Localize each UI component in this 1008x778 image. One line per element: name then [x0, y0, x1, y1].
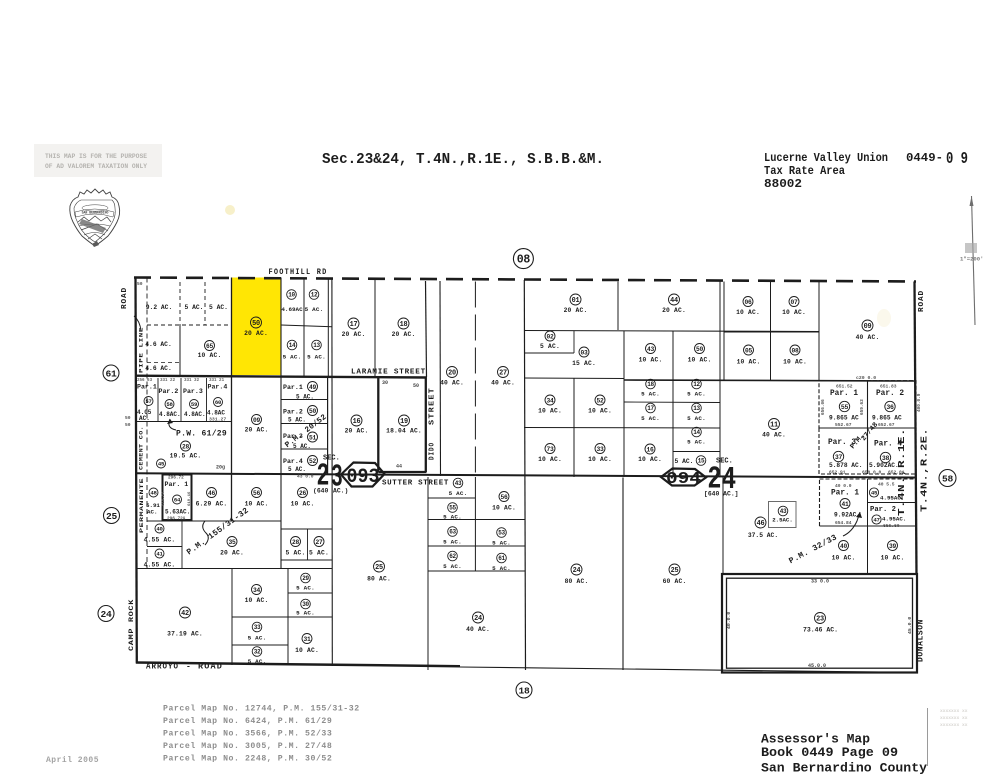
svg-text:10 AC.: 10 AC. — [688, 357, 712, 364]
svg-text:47: 47 — [873, 517, 880, 524]
svg-text:34: 34 — [547, 397, 554, 404]
svg-text:44: 44 — [396, 464, 402, 470]
svg-text:5 AC.: 5 AC. — [305, 306, 324, 313]
svg-text:23: 23 — [816, 615, 824, 623]
svg-text:01: 01 — [572, 297, 580, 305]
svg-text:5 AC.: 5 AC. — [296, 394, 314, 401]
svg-text:12: 12 — [693, 381, 700, 388]
svg-text:05: 05 — [745, 347, 752, 354]
svg-text:5 AC.: 5 AC. — [283, 354, 302, 361]
svg-text:ROAD: ROAD — [918, 290, 926, 312]
svg-text:44: 44 — [670, 297, 678, 305]
svg-text:20 AC.: 20 AC. — [662, 307, 686, 314]
svg-text:5 AC.: 5 AC. — [443, 514, 462, 521]
svg-text:5 AC.: 5 AC. — [288, 466, 306, 473]
svg-text:656.06: 656.06 — [821, 399, 826, 415]
svg-text:19.5 AC.: 19.5 AC. — [170, 453, 202, 460]
svg-text:33: 33 — [254, 624, 261, 631]
svg-text:25: 25 — [375, 564, 383, 572]
svg-text:9.865 AC: 9.865 AC — [829, 415, 859, 422]
svg-text:5 AC.: 5 AC. — [687, 439, 706, 446]
svg-text:5 AC.: 5 AC. — [185, 304, 204, 311]
svg-text:10 AC.: 10 AC. — [639, 357, 663, 364]
svg-text:60 AC.: 60 AC. — [663, 578, 687, 585]
svg-text:ROAD: ROAD — [198, 663, 223, 672]
svg-text:40 AC.: 40 AC. — [440, 380, 464, 387]
svg-text:Parcel Map No. 3566, P.M. 52/3: Parcel Map No. 3566, P.M. 52/33 — [163, 729, 332, 739]
svg-text:4.95AC.: 4.95AC. — [882, 516, 906, 523]
svg-text:Parcel Map No. 2248, P.M. 30/5: Parcel Map No. 2248, P.M. 30/52 — [163, 754, 332, 764]
svg-text:17: 17 — [647, 405, 654, 412]
svg-text:29: 29 — [302, 575, 309, 582]
svg-text:650 0.0: 650 0.0 — [862, 470, 882, 476]
svg-text:5 AC.: 5 AC. — [675, 458, 694, 465]
svg-text:619.16: 619.16 — [188, 491, 192, 506]
svg-text:40 AC.: 40 AC. — [491, 380, 515, 387]
svg-text:40 AC.: 40 AC. — [762, 432, 786, 439]
svg-text:20 AC.: 20 AC. — [245, 427, 269, 434]
svg-text:45.0.0: 45.0.0 — [808, 663, 826, 669]
svg-text:618.54: 618.54 — [162, 491, 166, 506]
svg-text:10 AC.: 10 AC. — [736, 309, 760, 316]
svg-text:4.55 AC.: 4.55 AC. — [144, 537, 176, 544]
svg-text:ROAD: ROAD — [121, 287, 129, 309]
svg-text:FOOTHILL RD: FOOTHILL RD — [269, 267, 328, 277]
svg-text:20 AC.: 20 AC. — [392, 331, 416, 338]
svg-text:10 AC.: 10 AC. — [832, 555, 856, 562]
svg-text:331 21: 331 21 — [209, 379, 225, 383]
svg-text:652.91: 652.91 — [829, 470, 846, 476]
svg-text:c20 0.0: c20 0.0 — [856, 375, 876, 381]
svg-text:STREET: STREET — [429, 387, 437, 425]
svg-text:6.29 AC.: 6.29 AC. — [196, 501, 228, 508]
svg-text:5 AC.: 5 AC. — [443, 563, 462, 570]
svg-text:[640 AC.]: [640 AC.] — [704, 491, 739, 498]
svg-text:50: 50 — [252, 320, 260, 328]
svg-text:60: 60 — [215, 399, 222, 406]
svg-text:52: 52 — [309, 458, 316, 465]
svg-text:April 2005: April 2005 — [46, 756, 99, 765]
svg-text:58: 58 — [166, 401, 173, 408]
svg-text:10: 10 — [288, 292, 295, 299]
svg-text:13: 13 — [693, 405, 700, 412]
svg-text:43: 43 — [647, 346, 654, 353]
svg-text:5 AC.: 5 AC. — [286, 550, 306, 557]
svg-text:5 AC.: 5 AC. — [492, 540, 511, 547]
svg-text:28: 28 — [182, 443, 189, 450]
svg-text:4.55 AC.: 4.55 AC. — [144, 562, 176, 569]
svg-text:5 AC.: 5 AC. — [443, 539, 462, 546]
svg-text:San Bernardino County: San Bernardino County — [761, 761, 927, 776]
svg-text:10 AC.: 10 AC. — [291, 501, 315, 508]
svg-text:40: 40 — [840, 543, 847, 550]
svg-text:CAMP ROCK: CAMP ROCK — [128, 599, 135, 651]
svg-text:4.8AC.: 4.8AC. — [159, 411, 181, 418]
svg-text:45: 45 — [158, 461, 165, 468]
svg-text:5 AC.: 5 AC. — [288, 417, 306, 424]
svg-text:400.0.9: 400.0.9 — [917, 393, 922, 412]
svg-text:48: 48 — [150, 490, 157, 497]
svg-text:DONALSON: DONALSON — [918, 619, 926, 662]
svg-text:08: 08 — [792, 347, 799, 354]
svg-text:4.8AC: 4.8AC — [207, 410, 225, 417]
svg-text:40 0.0: 40 0.0 — [835, 483, 852, 489]
svg-text:4.69AC: 4.69AC — [281, 306, 303, 313]
svg-text:02: 02 — [547, 333, 554, 340]
svg-text:296.72&: 296.72& — [167, 517, 186, 522]
svg-text:50: 50 — [125, 422, 131, 428]
svg-text:10 AC.: 10 AC. — [538, 408, 562, 415]
svg-text:63: 63 — [449, 529, 456, 536]
svg-text:0 9: 0 9 — [946, 149, 968, 168]
svg-text:12: 12 — [311, 292, 318, 299]
svg-text:652.01: 652.01 — [888, 470, 905, 476]
svg-text:552.67: 552.67 — [835, 422, 852, 428]
svg-text:656.60: 656.60 — [883, 523, 900, 529]
svg-text:50: 50 — [125, 415, 131, 421]
svg-text:24: 24 — [474, 615, 482, 623]
svg-text:5 AC.: 5 AC. — [296, 610, 315, 617]
svg-text:Tax Rate Area: Tax Rate Area — [764, 165, 845, 178]
svg-text:37.5 AC.: 37.5 AC. — [748, 532, 778, 539]
svg-text:73: 73 — [547, 446, 554, 453]
svg-text:093: 093 — [347, 466, 380, 489]
svg-text:50: 50 — [413, 383, 419, 389]
svg-text:45: 45 — [871, 490, 878, 497]
svg-text:45.0.0: 45.0.0 — [907, 617, 913, 634]
svg-text:25: 25 — [106, 511, 117, 522]
svg-text:5 AC.: 5 AC. — [248, 635, 267, 642]
svg-text:39: 39 — [889, 543, 896, 550]
svg-text:0449-: 0449- — [906, 152, 943, 165]
svg-text:4.8AC.: 4.8AC. — [184, 411, 206, 418]
svg-text:40: 40 — [156, 526, 163, 533]
svg-text:5 AC.: 5 AC. — [248, 658, 267, 665]
svg-text:41: 41 — [842, 501, 849, 508]
svg-text:10 AC.: 10 AC. — [245, 501, 269, 508]
svg-text:17: 17 — [350, 321, 358, 329]
svg-text:5 AC.: 5 AC. — [540, 343, 560, 350]
svg-text:SEC.: SEC. — [716, 458, 733, 466]
svg-text:42: 42 — [181, 610, 189, 618]
svg-text:31: 31 — [304, 636, 311, 643]
svg-text:Par.2: Par.2 — [159, 388, 179, 395]
svg-text:30: 30 — [382, 380, 388, 386]
svg-text:5.878 AC.: 5.878 AC. — [829, 462, 862, 469]
svg-text:4.6 AC.: 4.6 AC. — [145, 365, 171, 372]
svg-text:33 0.0: 33 0.0 — [811, 579, 829, 585]
svg-text:24: 24 — [573, 567, 581, 575]
svg-text:PERMANENTE: PERMANENTE — [138, 478, 145, 533]
svg-text:xxxxxxx xx: xxxxxxx xx — [940, 709, 968, 714]
svg-text:20 AC.: 20 AC. — [220, 550, 244, 557]
svg-text:38: 38 — [882, 455, 890, 462]
svg-text:24: 24 — [101, 609, 112, 620]
svg-text:40 5.5: 40 5.5 — [878, 482, 895, 488]
svg-text:34: 34 — [253, 587, 260, 594]
svg-text:27: 27 — [499, 369, 507, 377]
svg-text:331.27: 331.27 — [209, 417, 226, 423]
svg-text:ARROYO: ARROYO — [146, 663, 179, 672]
svg-text:64: 64 — [174, 497, 181, 504]
svg-text:Parcel Map No. 6424, P.M. 61/2: Parcel Map No. 6424, P.M. 61/29 — [163, 716, 332, 726]
svg-text:88002: 88002 — [764, 178, 802, 191]
svg-text:10 AC.: 10 AC. — [295, 647, 319, 654]
svg-text:15: 15 — [698, 458, 705, 465]
svg-text:5 AC.: 5 AC. — [641, 415, 660, 422]
svg-text:50: 50 — [696, 346, 703, 353]
svg-text:08: 08 — [517, 254, 531, 267]
svg-text:1"=200': 1"=200' — [960, 256, 984, 263]
svg-text:5 AC.: 5 AC. — [687, 415, 706, 422]
svg-text:Par. 1: Par. 1 — [830, 390, 858, 398]
svg-text:27: 27 — [316, 539, 323, 546]
svg-text:9.865 AC: 9.865 AC — [872, 415, 902, 422]
svg-text:Book 0449 Page 09: Book 0449 Page 09 — [761, 745, 898, 760]
svg-text:Par.4: Par.4 — [283, 458, 303, 465]
svg-text:73.46 AC.: 73.46 AC. — [803, 627, 838, 634]
svg-text:xxxxxxx xx: xxxxxxx xx — [940, 716, 968, 721]
svg-text:30: 30 — [302, 601, 309, 608]
svg-text:20g: 20g — [216, 465, 225, 471]
svg-text:Par.1: Par.1 — [137, 384, 157, 391]
svg-text:18: 18 — [647, 381, 654, 388]
svg-text:28: 28 — [292, 539, 299, 546]
svg-text:80 AC.: 80 AC. — [565, 578, 589, 585]
svg-text:10 AC.: 10 AC. — [737, 359, 761, 366]
svg-text:5.902AC.: 5.902AC. — [869, 462, 899, 469]
svg-text:50: 50 — [137, 281, 143, 287]
svg-text:62: 62 — [449, 553, 456, 560]
svg-text:19: 19 — [400, 418, 408, 426]
svg-text:Par. 2: Par. 2 — [870, 506, 896, 514]
svg-text:4.95AC.: 4.95AC. — [880, 495, 904, 502]
svg-text:32: 32 — [254, 649, 261, 656]
svg-text:46: 46 — [208, 490, 215, 497]
svg-text:40 AC.: 40 AC. — [466, 626, 490, 633]
svg-text:49: 49 — [309, 384, 316, 391]
svg-text:9.92AC.: 9.92AC. — [834, 512, 860, 519]
svg-text:5 AC.: 5 AC. — [449, 490, 468, 497]
svg-text:5 AC.: 5 AC. — [687, 391, 706, 398]
svg-text:43: 43 — [455, 480, 462, 487]
svg-text:36: 36 — [886, 404, 894, 411]
svg-text:5 AC.: 5 AC. — [641, 391, 660, 398]
svg-text:Parcel Map No. 3005, P.M. 27/4: Parcel Map No. 3005, P.M. 27/48 — [163, 741, 332, 751]
svg-text:SAN BERNARDINO: SAN BERNARDINO — [82, 211, 109, 215]
svg-text:53: 53 — [498, 530, 505, 537]
svg-text:09: 09 — [253, 417, 260, 424]
svg-text:57: 57 — [145, 398, 151, 405]
svg-text:Par. 1: Par. 1 — [831, 490, 859, 498]
svg-text:56: 56 — [253, 490, 260, 497]
svg-text:51: 51 — [309, 434, 316, 441]
svg-text:55: 55 — [449, 505, 456, 512]
svg-text:(640: (640 — [313, 488, 329, 495]
svg-text:094: 094 — [666, 470, 701, 489]
svg-text:Parcel Map No. 12744, P.M. 155: Parcel Map No. 12744, P.M. 155/31-32 — [163, 704, 360, 714]
svg-text:10 AC.: 10 AC. — [538, 456, 562, 463]
svg-text:5 AC.: 5 AC. — [309, 550, 329, 557]
svg-text:651.83: 651.83 — [880, 384, 897, 390]
svg-text:14: 14 — [289, 342, 296, 349]
svg-text:9.2 AC.: 9.2 AC. — [146, 304, 172, 311]
svg-text:Lucerne Valley Union: Lucerne Valley Union — [764, 152, 888, 165]
svg-text:5 AC.: 5 AC. — [209, 304, 228, 311]
svg-text:56: 56 — [501, 494, 508, 501]
svg-text:09: 09 — [864, 323, 872, 331]
svg-text:20 AC.: 20 AC. — [564, 307, 588, 314]
svg-text:18.04 AC.: 18.04 AC. — [386, 428, 422, 435]
svg-text:10 AC.: 10 AC. — [782, 309, 806, 316]
svg-text:80 AC.: 80 AC. — [367, 576, 391, 583]
svg-text:OF AD VALOREM TAXATION ONLY: OF AD VALOREM TAXATION ONLY — [45, 163, 147, 170]
svg-text:5.63AC.: 5.63AC. — [165, 509, 190, 516]
svg-text:DIDO: DIDO — [429, 442, 437, 460]
svg-text:659.63: 659.63 — [860, 399, 865, 415]
svg-text:331 32: 331 32 — [184, 379, 200, 383]
svg-text:11: 11 — [770, 421, 778, 429]
svg-text:50: 50 — [309, 408, 316, 415]
svg-text:40 AC.: 40 AC. — [856, 334, 880, 341]
svg-text:55: 55 — [841, 404, 849, 411]
svg-text:06: 06 — [745, 299, 752, 306]
svg-text:03: 03 — [581, 349, 588, 356]
svg-text:xxxxxxx xx: xxxxxxx xx — [940, 723, 968, 728]
svg-text:10 AC.: 10 AC. — [492, 505, 516, 512]
svg-text:Par. 4: Par. 4 — [874, 441, 902, 449]
svg-text:35: 35 — [229, 539, 236, 546]
svg-text:Par.2: Par.2 — [283, 409, 303, 416]
svg-text:18: 18 — [400, 321, 408, 329]
svg-text:61: 61 — [498, 555, 505, 562]
svg-text:Par.1: Par.1 — [283, 384, 303, 391]
svg-text:10 AC.: 10 AC. — [198, 352, 222, 359]
svg-text:41: 41 — [156, 551, 163, 558]
svg-text:46: 46 — [757, 520, 765, 528]
svg-text:10 AC.: 10 AC. — [638, 456, 662, 463]
svg-text:10 AC.: 10 AC. — [783, 359, 807, 366]
svg-text:2.5AC.: 2.5AC. — [772, 517, 792, 524]
svg-text:15 AC.: 15 AC. — [572, 360, 596, 367]
svg-text:Par.3: Par.3 — [183, 388, 203, 395]
svg-text:59: 59 — [191, 401, 198, 408]
svg-text:13: 13 — [313, 342, 320, 349]
svg-text:20: 20 — [448, 369, 456, 377]
svg-text:LARAMIE STREET: LARAMIE STREET — [351, 368, 426, 376]
svg-text:PIPE LINE: PIPE LINE — [138, 327, 145, 373]
svg-text:Par. 1: Par. 1 — [165, 481, 189, 488]
svg-text:5 AC.: 5 AC. — [307, 354, 326, 361]
svg-text:5 AC.: 5 AC. — [296, 585, 315, 592]
svg-text:SEC.: SEC. — [323, 455, 340, 463]
svg-text:20 AC.: 20 AC. — [345, 428, 369, 435]
svg-text:07: 07 — [791, 299, 798, 306]
svg-text:652.67: 652.67 — [878, 422, 895, 428]
svg-text:37.19 AC.: 37.19 AC. — [167, 631, 203, 638]
svg-text:58: 58 — [942, 473, 953, 484]
svg-text:651.52: 651.52 — [836, 384, 853, 390]
svg-text:THIS MAP IS FOR THE PURPOSE: THIS MAP IS FOR THE PURPOSE — [45, 153, 147, 160]
svg-text:20 AC.: 20 AC. — [342, 331, 366, 338]
svg-text:40.0.0: 40.0.0 — [726, 612, 732, 629]
svg-text:10 AC.: 10 AC. — [588, 456, 612, 463]
svg-text:33: 33 — [597, 446, 604, 453]
svg-text:5 AC.: 5 AC. — [492, 565, 511, 572]
svg-text:25: 25 — [671, 567, 679, 575]
svg-text:CEMENT CO.: CEMENT CO. — [138, 426, 145, 470]
svg-text:10 AC.: 10 AC. — [588, 408, 612, 415]
svg-text:Sec.23&24, T.4N.,R.1E., S.B.B.: Sec.23&24, T.4N.,R.1E., S.B.B.&M. — [322, 151, 604, 168]
svg-text:654.84: 654.84 — [835, 520, 852, 526]
svg-text:Par.4: Par.4 — [208, 384, 228, 391]
svg-text:52: 52 — [597, 397, 604, 404]
svg-text:37: 37 — [835, 454, 843, 461]
svg-text:16: 16 — [353, 418, 361, 426]
svg-text:T.4N.,R.2E.: T.4N.,R.2E. — [920, 428, 930, 512]
svg-text:65: 65 — [206, 343, 213, 350]
svg-text:43 0.0: 43 0.0 — [297, 474, 314, 480]
svg-text:296.72: 296.72 — [168, 476, 184, 481]
svg-text:43: 43 — [780, 508, 787, 515]
svg-text:16: 16 — [647, 446, 654, 453]
svg-text:Par. 2: Par. 2 — [876, 390, 904, 398]
svg-text:4.6 AC.: 4.6 AC. — [145, 341, 171, 348]
svg-text:SUTTER STREET: SUTTER STREET — [382, 480, 449, 488]
svg-text:-: - — [186, 663, 191, 672]
svg-text:18: 18 — [519, 685, 530, 696]
svg-text:10 AC.: 10 AC. — [881, 555, 905, 562]
svg-text:26: 26 — [299, 490, 306, 497]
svg-text:256 63: 256 63 — [137, 379, 153, 383]
svg-text:AC.: AC. — [147, 509, 157, 516]
svg-text:20 AC.: 20 AC. — [244, 330, 268, 337]
svg-text:10 AC.: 10 AC. — [245, 597, 269, 604]
svg-text:14: 14 — [693, 429, 700, 436]
svg-text:AC.: AC. — [139, 415, 150, 422]
svg-text:61: 61 — [106, 368, 117, 379]
svg-text:P.W. 61/29: P.W. 61/29 — [176, 430, 227, 439]
svg-text:331 22: 331 22 — [160, 379, 176, 383]
